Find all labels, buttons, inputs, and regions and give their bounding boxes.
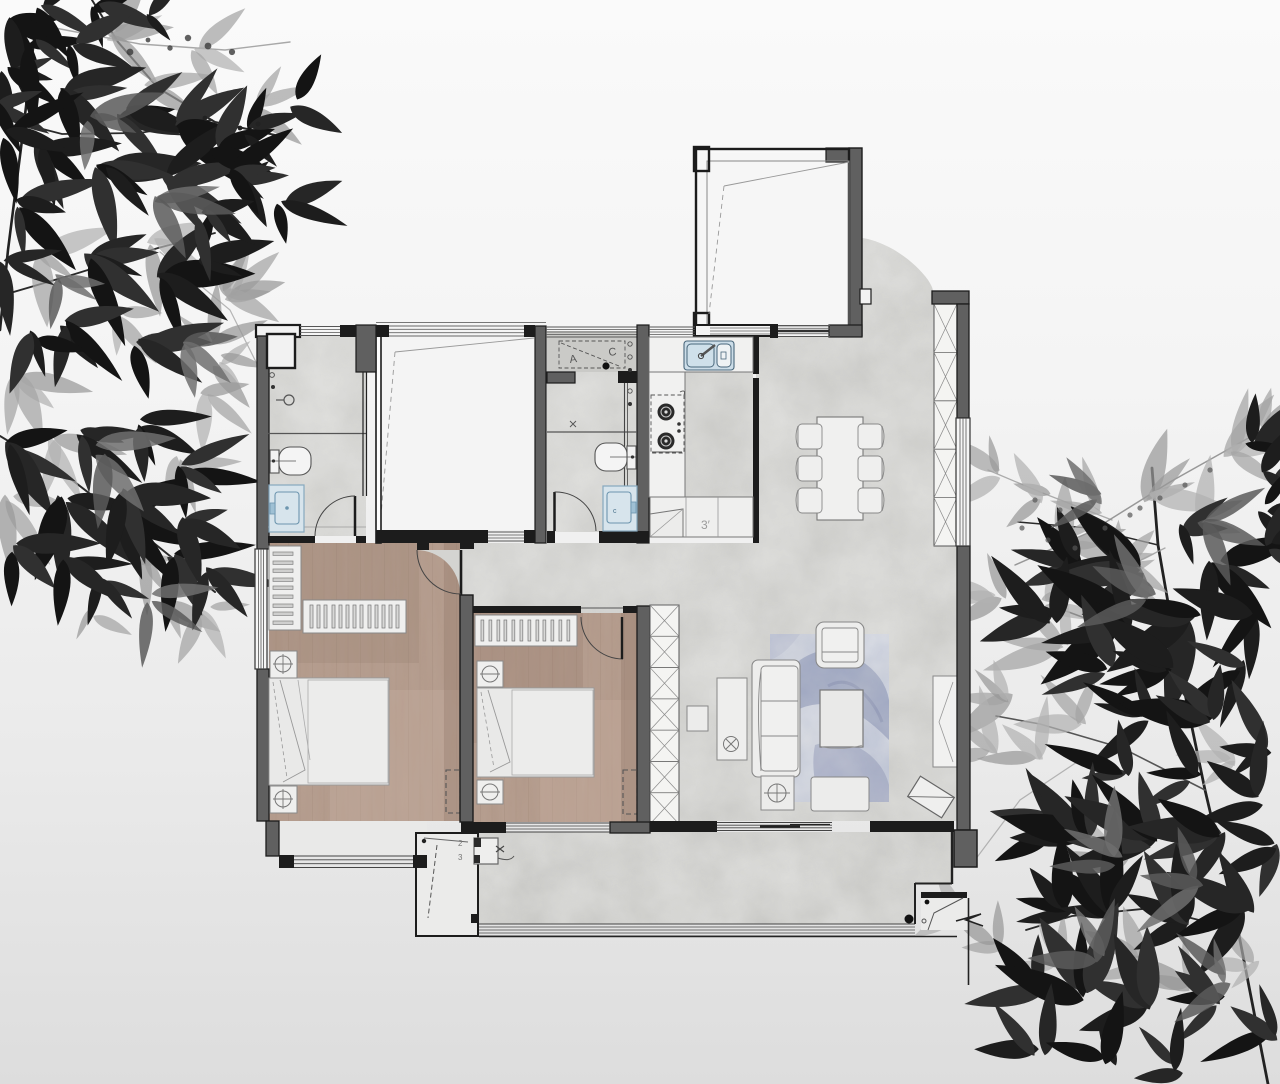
svg-text:3: 3 [458,853,463,862]
svg-text:c: c [613,508,617,515]
svg-text:3′: 3′ [701,518,711,532]
svg-text:2: 2 [458,839,463,848]
